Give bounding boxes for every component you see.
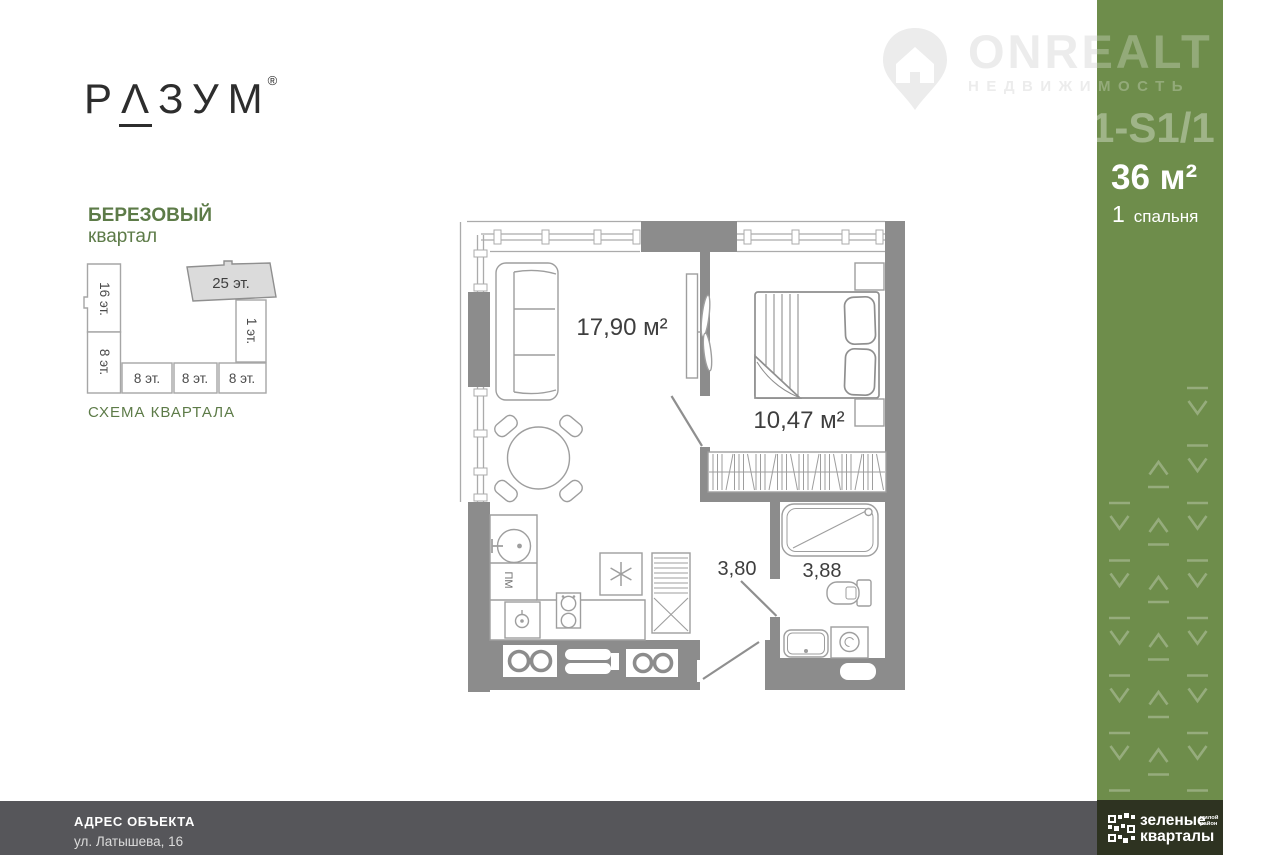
bedroom-wardrobe [708,452,886,492]
bedroom-area-label: 10,47 м² [753,407,844,434]
logo-letter-p: Р [84,75,121,122]
door-leaves [672,396,777,679]
schema-label-25: 25 эт. [212,275,250,292]
floor-plan: 17,90 м² 10,47 м² 3,80 3,88 ПМ [455,215,910,695]
living-area-label: 17,90 м² [576,314,667,341]
chevron-pattern [1097,0,1223,800]
washbasin [784,630,828,657]
washing-machine [831,627,868,658]
schema-label-16: 16 эт. [97,282,112,316]
developer-logo-block: зеленые кварталы жилой район [1097,800,1223,855]
address-value: ул. Латышева, 16 [74,834,183,849]
district-title-line2: квартал [88,226,157,247]
quarter-schema: 16 эт. 8 эт. 8 эт. 8 эт. 8 эт. 1 эт. 25 … [80,255,290,405]
developer-name-line2: кварталы [1140,828,1214,846]
schema-label-8b: 8 эт. [134,371,160,386]
qr-icon [1108,813,1135,844]
logo-letter-a: Λ [121,78,158,120]
brand-logo: РΛЗУМ® [84,74,277,120]
bed [755,292,879,398]
hall-area-label: 3,80 [718,558,757,580]
bath-area-label: 3,88 [803,560,842,582]
developer-tagline: жилой район [1200,815,1218,827]
schema-label-8a: 8 эт. [97,349,112,375]
dining-set [492,413,584,504]
schema-caption: СХЕМА КВАРТАЛА [88,404,235,421]
district-title-line1: БЕРЕЗОВЫЙ [88,205,212,226]
logo-underline [119,124,152,127]
address-bar: АДРЕС ОБЪЕКТА ул. Латышева, 16 [0,801,1097,855]
living-door-leaf [672,396,703,446]
flyer-page: РΛЗУМ® БЕРЕЗОВЫЙ квартал 16 эт. 8 эт. 8 … [0,0,1280,855]
onrealt-pin-icon [880,26,950,112]
bathtub [782,504,878,556]
developer-tagline-2: район [1200,821,1218,827]
sofa [496,263,558,400]
schema-label-8d: 8 эт. [229,371,255,386]
registered-mark: ® [268,73,278,88]
toilet [827,580,871,606]
schema-label-8c: 8 эт. [182,371,208,386]
developer-name-line1: зеленые [1140,813,1206,828]
address-label: АДРЕС ОБЪЕКТА [74,814,195,829]
district-title: БЕРЕЗОВЫЙ квартал [88,205,212,247]
logo-letters-rest: ЗУМ [158,75,272,122]
info-panel: ONREALT НЕДВИЖИМОСТЬ 1-S1/1 36 м² 1спаль… [1097,0,1223,800]
schema-label-1: 1 эт. [244,318,259,344]
hall-closet [652,553,690,633]
dishwasher-label: ПМ [502,571,514,588]
fridge [600,553,642,595]
